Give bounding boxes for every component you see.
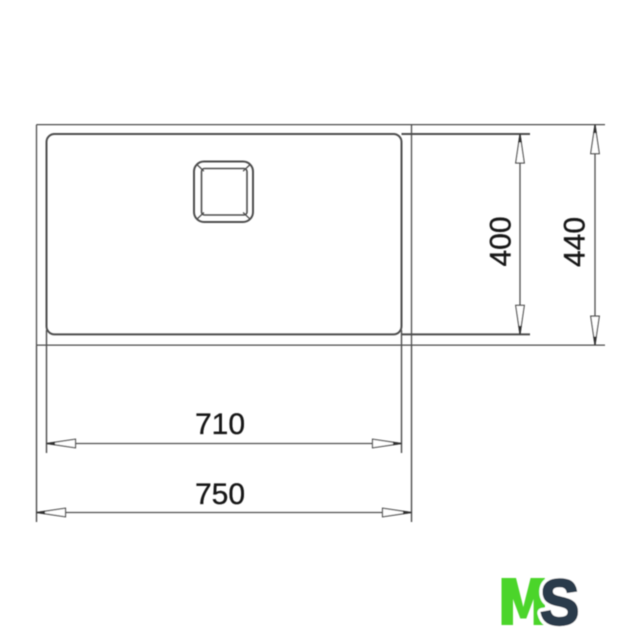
svg-text:S: S: [540, 567, 579, 639]
svg-text:750: 750: [195, 478, 245, 511]
svg-text:710: 710: [195, 408, 245, 441]
svg-text:400: 400: [485, 216, 518, 266]
svg-text:440: 440: [559, 217, 592, 267]
